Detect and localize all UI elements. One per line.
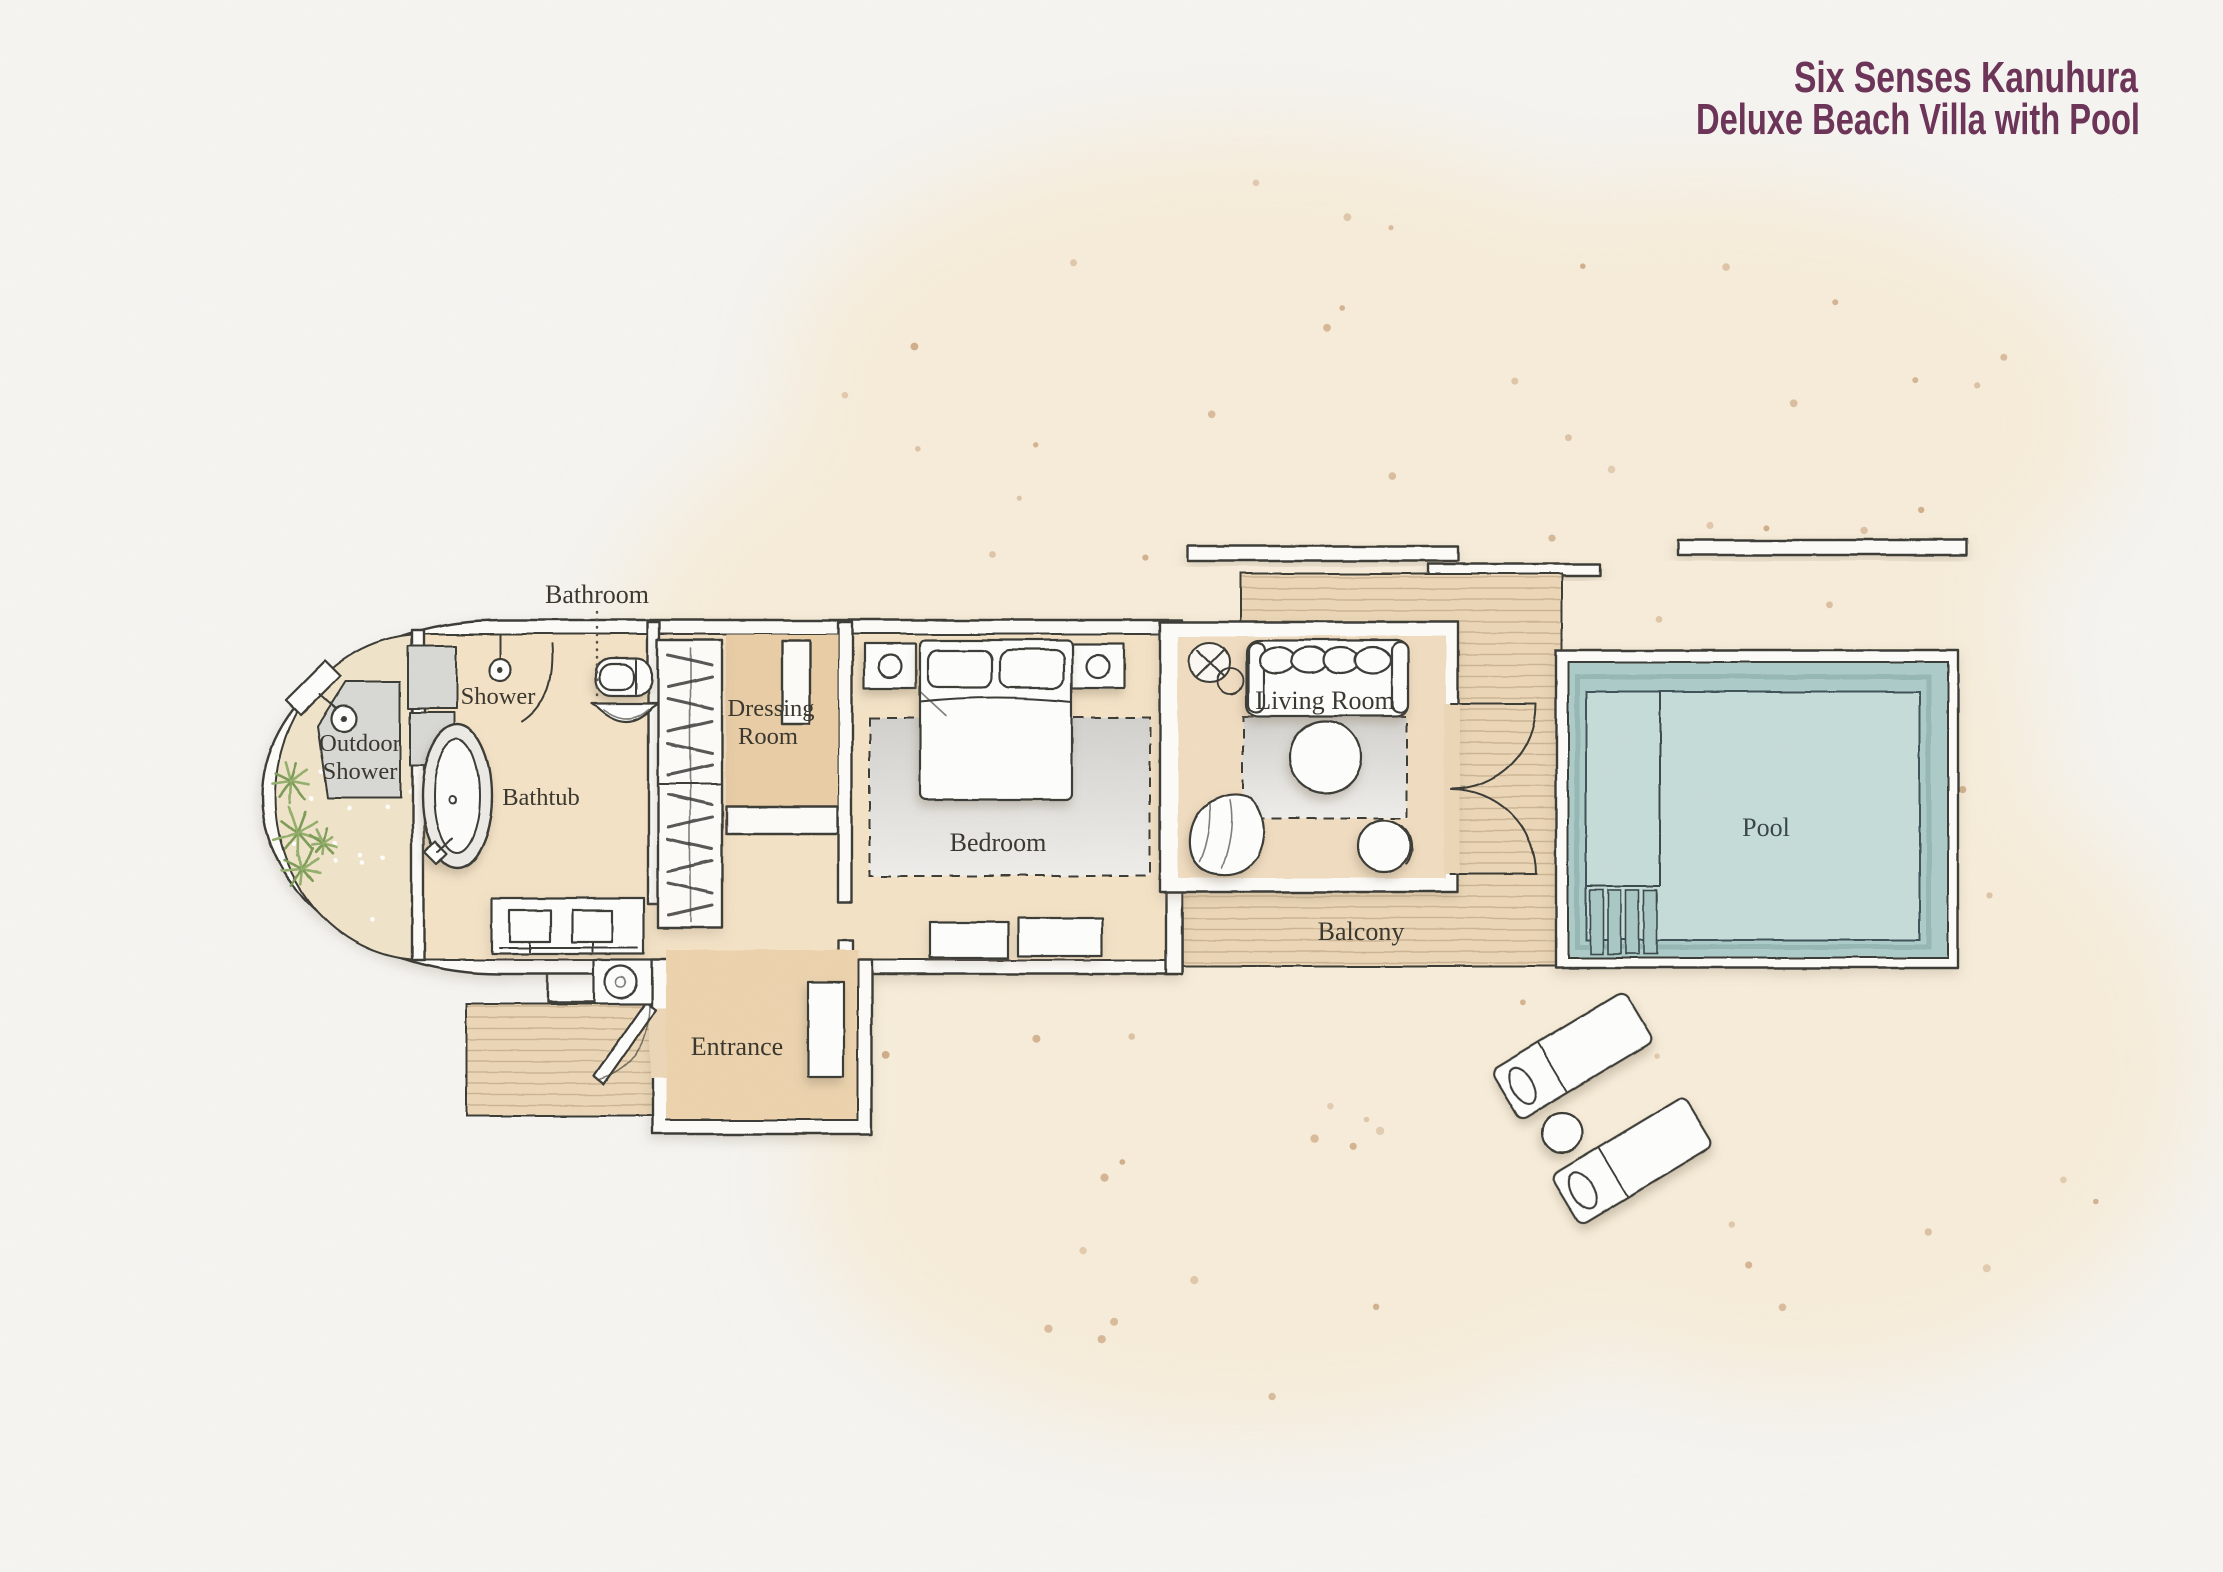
sand-dot (1350, 1143, 1357, 1150)
sand-dot (1654, 1053, 1660, 1059)
nightstand-icon (864, 644, 916, 688)
sand-dot (1826, 601, 1833, 608)
sand-dot (1779, 1304, 1787, 1312)
sand-dot (989, 551, 996, 558)
sand-dot (1565, 434, 1572, 441)
sand-speckle (333, 841, 338, 846)
sand-speckle (358, 852, 363, 857)
sand-dot (1323, 324, 1331, 332)
wall-dressing-bedroom (838, 622, 852, 902)
sand-dot (1706, 522, 1713, 529)
sand-dot (1110, 1318, 1118, 1326)
sand-dot (1832, 299, 1838, 305)
plant-frond (281, 869, 303, 871)
sand-dot (1918, 507, 1924, 513)
dressing-closet (726, 806, 838, 834)
label-bathtub: Bathtub (502, 784, 580, 811)
roof-slat (1678, 540, 1966, 555)
sand-dot (1983, 1264, 1991, 1272)
sand-dot (1548, 535, 1555, 542)
bathtub-icon (422, 724, 492, 868)
sand-dot (1376, 1127, 1384, 1135)
sand-dot (1974, 382, 1980, 388)
sand-dot (1268, 1393, 1275, 1400)
vanity-icon (492, 898, 644, 954)
sand-dot (1722, 263, 1730, 271)
side-table-icon (1542, 1113, 1582, 1153)
sand-dot (1925, 1228, 1932, 1235)
sand-dot (1520, 999, 1526, 1005)
coffee-table-icon (1289, 721, 1361, 793)
label-balcony: Balcony (1318, 917, 1405, 946)
sand-speckle (309, 796, 314, 801)
basin-icon (605, 966, 637, 998)
sand-dot (1079, 1247, 1086, 1254)
sand-dot (2000, 354, 2007, 361)
sand-dot (2093, 1199, 2099, 1205)
sand-dot (882, 1051, 890, 1059)
sand-dot (1044, 1325, 1052, 1333)
roof-slat (1188, 546, 1458, 561)
sand-dot (1327, 1103, 1334, 1110)
sand-dot (1033, 442, 1038, 447)
pillow-icon (928, 650, 992, 688)
label-outdoor-shower: Outdoor (319, 730, 401, 757)
sand-dot (1608, 466, 1616, 474)
sand-dot (1389, 472, 1397, 480)
sand-dot (1373, 1304, 1379, 1310)
shower-head-dot (497, 667, 503, 673)
label-dressing-room: Dressing (727, 695, 814, 722)
sand-dot (1100, 1174, 1108, 1182)
sand-dot (1032, 1035, 1040, 1043)
wardrobe-icon (658, 640, 722, 928)
label-shower: Shower (461, 683, 536, 710)
sand-speckle (360, 860, 365, 865)
sand-dot (1729, 1221, 1735, 1227)
sand-dot (1763, 525, 1769, 531)
sand-dot (842, 392, 849, 399)
sand-dot (1070, 259, 1077, 266)
armchair-icon (1358, 820, 1412, 872)
lamp-icon (879, 655, 902, 678)
sand-dot (1656, 616, 1663, 623)
label-bedroom: Bedroom (950, 828, 1047, 857)
page: { "title": { "line1": "Six Senses Kanuhu… (0, 0, 2223, 1572)
label-outdoor-shower: Shower (323, 758, 398, 785)
sand-speckle (347, 806, 352, 811)
sand-dot (1860, 527, 1867, 534)
pool-area (1556, 650, 1958, 968)
bed-icon (920, 640, 1072, 800)
title-line2: Deluxe Beach Villa with Pool (1696, 95, 2140, 144)
floor-plan: Bathroom Shower Outdoor Shower Bathtub D… (0, 0, 2223, 1572)
label-pool: Pool (1742, 813, 1790, 842)
sand-dot (1119, 1159, 1125, 1165)
sand-dot (915, 446, 921, 452)
sand-dot (1253, 180, 1260, 187)
sand-dot (1959, 786, 1966, 793)
sand-speckle (334, 859, 339, 864)
sand-dot (1339, 305, 1345, 311)
sand-dot (1128, 1033, 1135, 1040)
bedroom-bench-icon (1018, 918, 1102, 956)
sand-dot (1580, 263, 1586, 269)
sand-dot (2060, 1177, 2067, 1184)
pillow-icon (1000, 650, 1064, 688)
sand-dot (911, 343, 919, 351)
shower-tile (408, 646, 456, 708)
nightstand-icon (1072, 644, 1124, 688)
sand-dot (1208, 411, 1216, 419)
toilet-icon (596, 658, 652, 696)
sand-dot (1310, 1134, 1318, 1142)
entrance-doorway (650, 1008, 666, 1078)
sand-speckle (369, 917, 374, 922)
sand-dot (1986, 892, 1992, 898)
sand-dot (1912, 377, 1918, 383)
sand-dot (1790, 399, 1798, 407)
sand-dot (1017, 496, 1022, 501)
lamp-icon (1087, 655, 1110, 678)
bedroom-bench-icon (930, 922, 1008, 958)
sand-dot (1190, 1276, 1198, 1284)
sand-dot (1388, 225, 1393, 230)
sand-dot (1098, 1335, 1106, 1343)
sand-speckle (385, 805, 390, 810)
label-living-room: Living Room (1255, 686, 1394, 715)
sand-dot (1511, 378, 1518, 385)
sand-dot (1745, 1261, 1752, 1268)
label-dressing-room: Room (738, 723, 798, 750)
sand-dot (1364, 1117, 1370, 1123)
label-bathroom: Bathroom (545, 580, 649, 609)
bench-icon (808, 982, 844, 1076)
sand-dot (1344, 213, 1352, 221)
sand-dot (1142, 555, 1148, 561)
washstand-icon (594, 960, 652, 1004)
label-entrance: Entrance (691, 1032, 783, 1061)
sand-speckle (381, 855, 386, 860)
